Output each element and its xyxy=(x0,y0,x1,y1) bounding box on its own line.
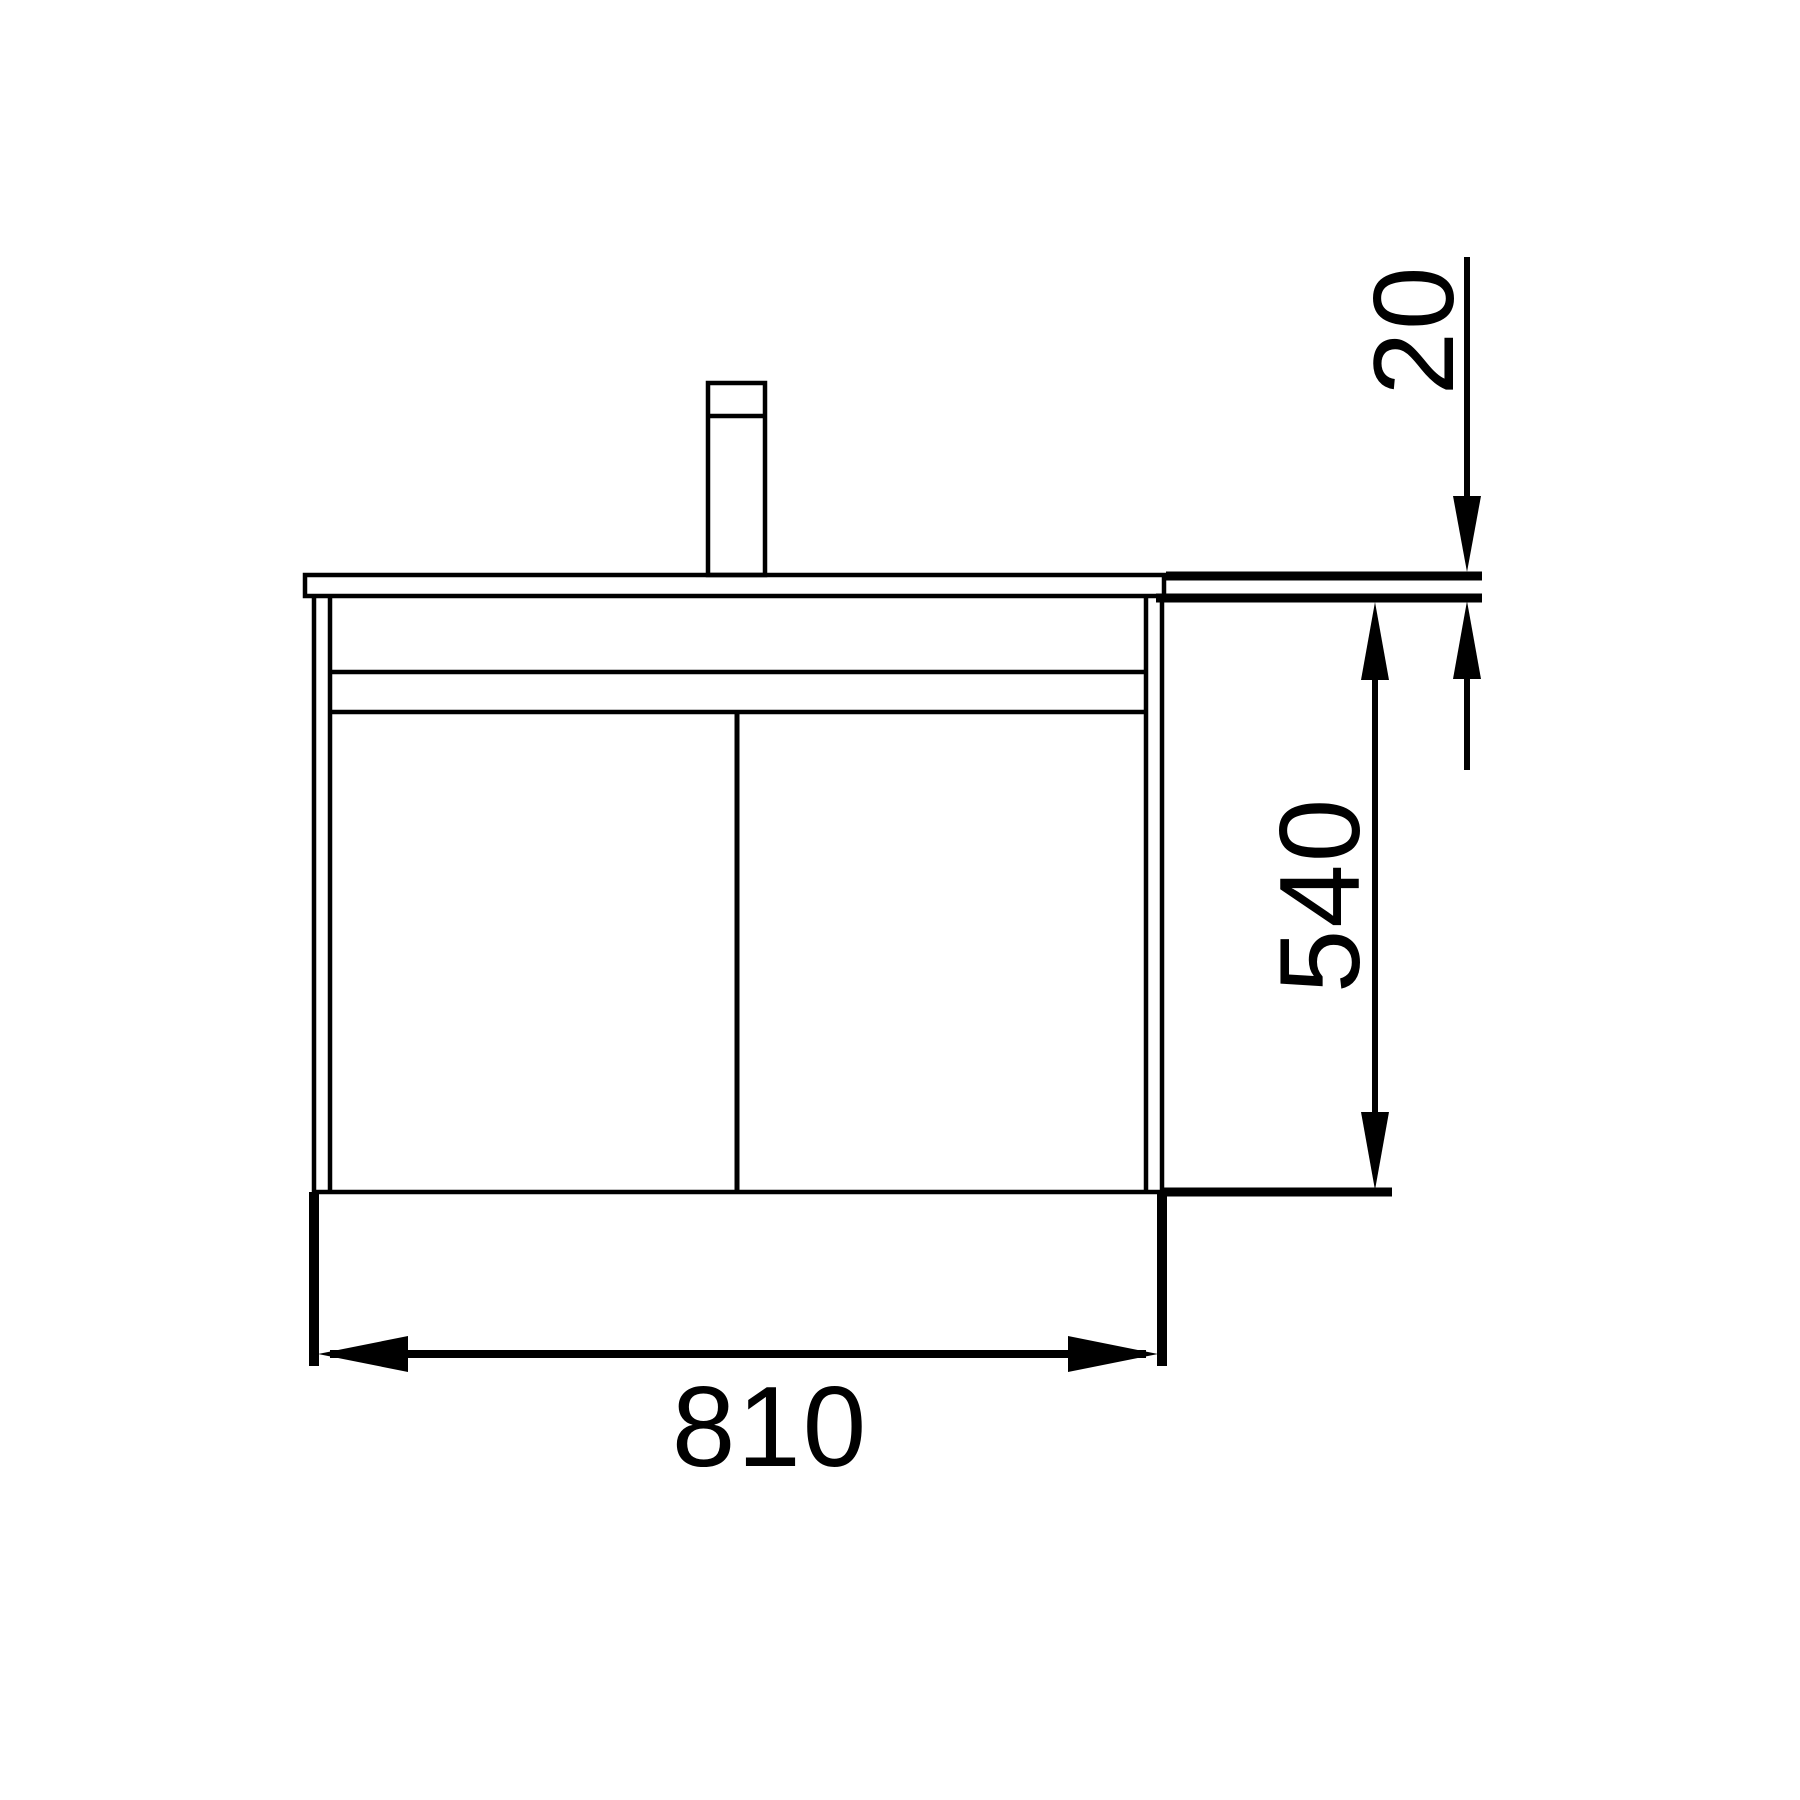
vanity-outline-group xyxy=(305,383,1164,1192)
dim-height-arrow-down xyxy=(1361,1112,1389,1190)
dim-width-arrow-left xyxy=(318,1336,408,1372)
dim-width-arrow-right xyxy=(1068,1336,1158,1372)
drawing-canvas: 810 540 20 xyxy=(0,0,1800,1800)
dim-height-arrow-up xyxy=(1361,602,1389,680)
dim-thickness-arrow-down xyxy=(1453,496,1481,572)
vanity-technical-drawing: 810 540 20 xyxy=(0,0,1800,1800)
dim-thickness-label: 20 xyxy=(1351,265,1478,396)
faucet xyxy=(708,383,765,575)
dim-thickness-arrow-up xyxy=(1453,601,1481,679)
countertop xyxy=(305,575,1164,596)
dim-height-label: 540 xyxy=(1257,797,1384,993)
dim-width-label: 810 xyxy=(672,1364,868,1491)
